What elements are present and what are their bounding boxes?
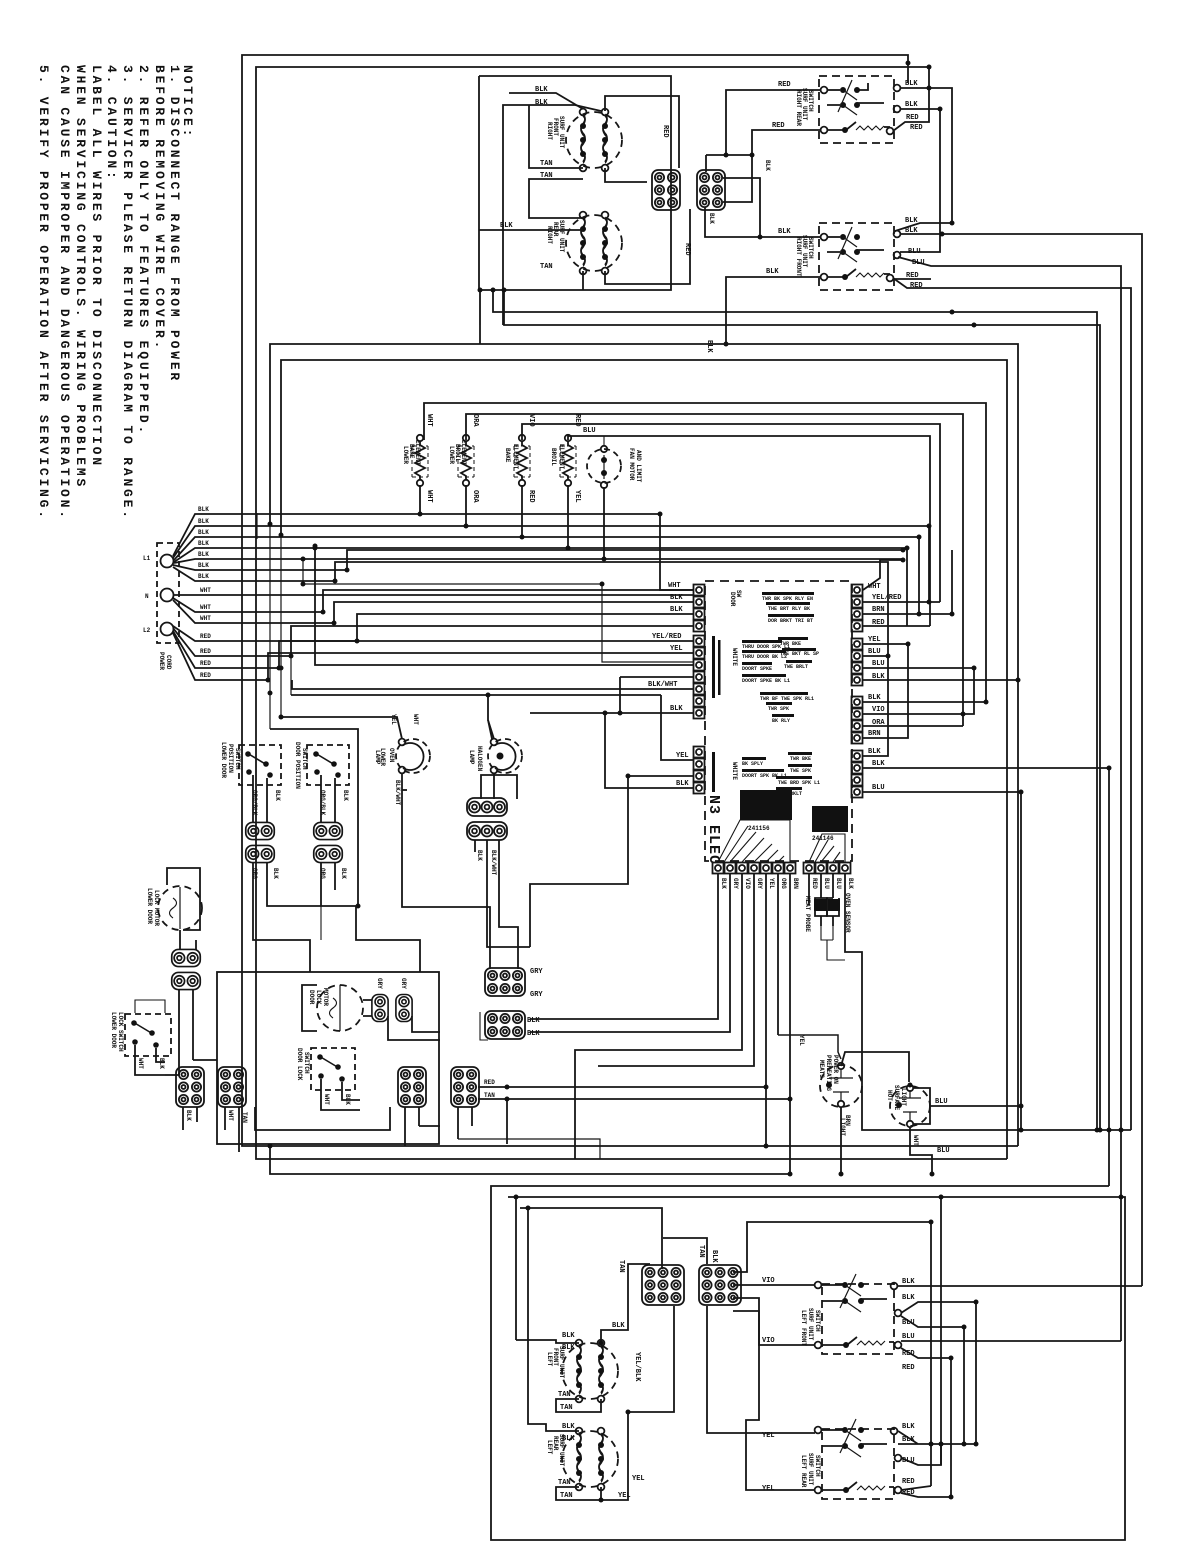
svg-text:GRY: GRY — [530, 991, 543, 999]
svg-text:ORG: ORG — [780, 878, 787, 889]
svg-text:WHT: WHT — [227, 1110, 234, 1121]
svg-text:BLK: BLK — [198, 540, 209, 547]
svg-text:LABEL ALL WIRES PRIOR TO DISCO: LABEL ALL WIRES PRIOR TO DISCONNECTION — [89, 65, 104, 468]
svg-text:RED: RED — [902, 1350, 915, 1358]
svg-text:BLK: BLK — [527, 1017, 540, 1025]
svg-text:THE BRT RLY BK: THE BRT RLY BK — [768, 606, 810, 612]
svg-text:MEATS: MEATS — [818, 1060, 825, 1078]
svg-text:WHT: WHT — [137, 1058, 144, 1069]
svg-text:BLK: BLK — [535, 86, 548, 94]
svg-text:YEL/RED: YEL/RED — [652, 633, 681, 641]
svg-text:BK SPLY: BK SPLY — [742, 761, 763, 767]
svg-text:ORA: ORA — [872, 719, 885, 727]
svg-text:BLK: BLK — [185, 1110, 192, 1121]
svg-text:LOCK: LOCK — [315, 990, 322, 1005]
svg-text:RED: RED — [902, 1478, 915, 1486]
svg-text:BLK/WHT: BLK/WHT — [648, 681, 677, 689]
svg-text:GRY: GRY — [756, 878, 763, 889]
svg-text:BLK: BLK — [905, 101, 918, 109]
svg-text:BLK: BLK — [905, 80, 918, 88]
svg-text:TAN: TAN — [558, 1391, 571, 1399]
svg-text:VIO: VIO — [762, 1277, 775, 1285]
svg-text:PREHEATING: PREHEATING — [825, 1055, 832, 1091]
svg-text:GRY: GRY — [732, 878, 739, 889]
svg-text:LOWER DOOR: LOWER DOOR — [110, 1012, 117, 1048]
svg-text:ELEMENT: ELEMENT — [558, 444, 565, 470]
svg-text:DOOR: DOOR — [308, 990, 315, 1005]
svg-text:BROIL: BROIL — [454, 444, 461, 462]
svg-text:BLK: BLK — [612, 1322, 625, 1330]
svg-text:RED: RED — [683, 243, 691, 256]
svg-text:DOR BRKT TRI BT: DOR BRKT TRI BT — [768, 618, 813, 624]
svg-text:TWE SPK: TWE SPK — [790, 768, 811, 774]
svg-text:BLK: BLK — [872, 760, 885, 768]
svg-text:RED: RED — [902, 1489, 915, 1497]
svg-text:SURF UNIT: SURF UNIT — [801, 235, 808, 268]
svg-text:MOTOR: MOTOR — [322, 988, 329, 1006]
svg-text:YEL: YEL — [390, 714, 397, 725]
svg-text:FRONT: FRONT — [552, 1348, 559, 1366]
svg-text:BLK: BLK — [872, 673, 885, 681]
svg-text:LOWER: LOWER — [448, 446, 455, 464]
svg-text:SWITCH: SWITCH — [303, 1052, 310, 1074]
svg-text:GRY: GRY — [400, 978, 407, 989]
svg-text:RED: RED — [200, 633, 211, 640]
svg-text:SWITCH: SWITCH — [301, 748, 308, 770]
svg-text:BLK: BLK — [670, 594, 683, 602]
svg-text:SW: SW — [735, 590, 742, 598]
svg-text:VIO: VIO — [527, 414, 535, 427]
svg-text:BLK: BLK — [500, 222, 513, 230]
svg-text:RED: RED — [910, 124, 923, 132]
svg-text:BLK: BLK — [905, 217, 918, 225]
svg-text:BLK: BLK — [562, 1344, 575, 1352]
svg-text:SURF UNIT: SURF UNIT — [558, 116, 565, 149]
svg-text:BLK: BLK — [902, 1294, 915, 1302]
svg-text:241156: 241156 — [748, 825, 770, 832]
svg-text:BLK: BLK — [764, 160, 771, 171]
svg-text:BLK: BLK — [868, 694, 881, 702]
svg-text:YEL/RED: YEL/RED — [872, 594, 901, 602]
svg-text:BLU: BLU — [908, 248, 921, 256]
svg-text:BLK: BLK — [342, 790, 349, 801]
svg-text:RED: RED — [200, 660, 211, 667]
svg-text:LAMP: LAMP — [468, 750, 475, 765]
svg-text:LOCK SWITCH: LOCK SWITCH — [117, 1012, 124, 1052]
svg-text:WHT: WHT — [868, 583, 881, 591]
svg-text:BLK: BLK — [905, 227, 918, 235]
svg-text:WHT: WHT — [912, 1135, 919, 1146]
svg-text:LOWER DOOR: LOWER DOOR — [146, 888, 153, 924]
svg-text:BRN: BRN — [872, 606, 885, 614]
svg-text:LOWER DOOR: LOWER DOOR — [220, 742, 227, 778]
svg-text:VIO: VIO — [762, 1337, 775, 1345]
svg-text:BLK: BLK — [708, 213, 715, 224]
svg-text:WHEN SERVICING CONTROLS. WIRIN: WHEN SERVICING CONTROLS. WIRING PROBLEMS — [73, 65, 88, 489]
svg-text:BLK: BLK — [274, 790, 281, 801]
svg-text:CAN CAUSE IMPROPER AND DANGERO: CAN CAUSE IMPROPER AND DANGEROUS OPERATI… — [57, 65, 72, 521]
svg-text:BLK: BLK — [710, 1250, 718, 1263]
svg-text:BLK/WHT: BLK/WHT — [490, 850, 497, 876]
svg-text:BLU: BLU — [902, 1333, 915, 1341]
svg-text:LOCK MOTOR: LOCK MOTOR — [153, 890, 160, 926]
svg-text:HALOGEN: HALOGEN — [476, 746, 483, 772]
svg-text:OVEN SENSOR: OVEN SENSOR — [844, 893, 851, 933]
svg-text:TWE BKT RL SP: TWE BKT RL SP — [780, 651, 819, 657]
svg-text:2. REFER ONLY TO FEATURES EQUI: 2. REFER ONLY TO FEATURES EQUIPPED. — [136, 65, 151, 436]
svg-text:ORG/BLK: ORG/BLK — [251, 790, 258, 816]
svg-text:LIGHT: LIGHT — [900, 1088, 907, 1106]
svg-text:BLK: BLK — [720, 878, 727, 889]
svg-text:TAN: TAN — [540, 172, 553, 180]
svg-text:LAMP: LAMP — [374, 750, 381, 765]
svg-text:BLU: BLU — [872, 660, 885, 668]
svg-text:WHT: WHT — [425, 414, 433, 427]
svg-text:WHT: WHT — [668, 582, 681, 590]
svg-text:RED: RED — [902, 1364, 915, 1372]
svg-text:DOOR POSITION: DOOR POSITION — [294, 742, 301, 789]
svg-text:TAN: TAN — [697, 1245, 705, 1258]
svg-text:SWITCH: SWITCH — [814, 1455, 821, 1477]
svg-text:TWR SPK: TWR SPK — [768, 706, 789, 712]
svg-text:BLK: BLK — [868, 748, 881, 756]
svg-text:RED: RED — [484, 1079, 495, 1086]
svg-text:TWR BKE: TWR BKE — [780, 641, 801, 647]
svg-text:BLK: BLK — [198, 562, 209, 569]
svg-text:BLK: BLK — [198, 551, 209, 558]
svg-text:LEFT FRONT: LEFT FRONT — [800, 1310, 807, 1346]
svg-text:BRN: BRN — [844, 1115, 851, 1126]
svg-text:BLK: BLK — [527, 1030, 540, 1038]
svg-text:TWR BF TWE SPK RL1: TWR BF TWE SPK RL1 — [760, 696, 814, 702]
svg-text:5. VERIFY PROPER OPERATION AFT: 5. VERIFY PROPER OPERATION AFTER SERVICI… — [36, 65, 51, 521]
svg-text:BEFORE REMOVING WIRE COVER.: BEFORE REMOVING WIRE COVER. — [152, 65, 167, 351]
svg-text:YEL: YEL — [768, 878, 775, 889]
svg-text:POWER ON: POWER ON — [832, 1055, 839, 1084]
svg-text:LEFT REAR: LEFT REAR — [800, 1455, 807, 1488]
svg-text:LEFT: LEFT — [546, 1440, 553, 1455]
svg-text:ORG/BLK: ORG/BLK — [319, 790, 326, 816]
svg-text:WHITE: WHITE — [731, 648, 738, 666]
svg-text:TAN: TAN — [560, 1492, 573, 1500]
svg-text:RED: RED — [910, 282, 923, 290]
svg-text:WHITE: WHITE — [731, 762, 738, 780]
svg-text:YEL: YEL — [676, 752, 689, 760]
svg-text:DOORT SPK BK L1: DOORT SPK BK L1 — [742, 773, 787, 779]
svg-text:DOORT SPKE: DOORT SPKE — [742, 666, 772, 672]
svg-text:BLK: BLK — [705, 340, 713, 353]
svg-text:BRN: BRN — [792, 878, 799, 889]
svg-text:BLK: BLK — [198, 518, 209, 525]
svg-text:BLK: BLK — [778, 228, 791, 236]
svg-text:SWITCH: SWITCH — [807, 90, 814, 112]
svg-text:BAKE: BAKE — [408, 444, 415, 459]
svg-text:SWITCH: SWITCH — [814, 1310, 821, 1332]
svg-text:SURF UNIT: SURF UNIT — [807, 1308, 814, 1341]
svg-text:RED: RED — [872, 619, 885, 627]
svg-text:AND LIMIT: AND LIMIT — [635, 450, 642, 483]
svg-text:BLU: BLU — [835, 878, 842, 889]
svg-text:WHT: WHT — [323, 1094, 330, 1105]
svg-text:BLK: BLK — [198, 573, 209, 580]
svg-text:BROIL: BROIL — [550, 448, 557, 466]
svg-text:RED: RED — [527, 490, 535, 503]
svg-text:BLK: BLK — [198, 506, 209, 513]
svg-text:WHT: WHT — [200, 604, 211, 611]
svg-text:BLK: BLK — [902, 1436, 915, 1444]
svg-text:DOOR LOCK: DOOR LOCK — [296, 1048, 303, 1081]
svg-text:BLK: BLK — [198, 529, 209, 536]
svg-text:POWER: POWER — [158, 652, 165, 670]
svg-text:SURF UNIT: SURF UNIT — [807, 1453, 814, 1486]
svg-text:TAN: TAN — [540, 263, 553, 271]
svg-text:3. SERVICER PLEASE RETURN DIAG: 3. SERVICER PLEASE RETURN DIAGRAM TO RAN… — [120, 65, 135, 521]
svg-text:GRY: GRY — [376, 978, 383, 989]
svg-text:BLU: BLU — [935, 1098, 948, 1106]
svg-text:BLK: BLK — [340, 868, 347, 879]
svg-text:RED: RED — [772, 122, 785, 130]
svg-text:YEL: YEL — [632, 1475, 645, 1483]
svg-text:L2: L2 — [143, 627, 151, 634]
svg-text:BLU: BLU — [823, 878, 830, 889]
svg-text:BLK/WHT: BLK/WHT — [394, 780, 401, 806]
svg-text:RED: RED — [200, 672, 211, 679]
svg-text:TAN: TAN — [540, 160, 553, 168]
svg-text:SWITCH: SWITCH — [234, 748, 241, 770]
svg-text:TWR BKE: TWR BKE — [790, 756, 811, 762]
svg-text:TAN: TAN — [484, 1092, 495, 1099]
svg-text:CORD: CORD — [165, 655, 172, 670]
svg-text:WHT: WHT — [412, 714, 419, 725]
svg-text:4. CAUTION:: 4. CAUTION: — [104, 65, 119, 182]
svg-text:POSITION: POSITION — [227, 744, 234, 773]
svg-text:241146: 241146 — [812, 835, 834, 842]
svg-text:BLU: BLU — [583, 427, 596, 435]
svg-text:WHT: WHT — [425, 490, 433, 503]
svg-text:TWE BRD SPK L1: TWE BRD SPK L1 — [778, 780, 820, 786]
svg-text:BLK: BLK — [562, 1423, 575, 1431]
svg-text:ELEMENT: ELEMENT — [460, 440, 467, 466]
svg-text:VIO: VIO — [872, 706, 885, 714]
svg-text:FRONT: FRONT — [552, 118, 559, 136]
svg-text:BLK: BLK — [158, 1058, 165, 1069]
svg-text:RIGHT REAR: RIGHT REAR — [795, 90, 802, 126]
svg-text:RED: RED — [811, 878, 818, 889]
svg-text:ORA: ORA — [471, 414, 479, 427]
svg-text:ELEMENT: ELEMENT — [512, 444, 519, 470]
svg-text:RIGHT: RIGHT — [546, 122, 553, 140]
svg-text:TAN: TAN — [241, 1112, 248, 1123]
svg-text:N3 ELEC: N3 ELEC — [705, 795, 722, 865]
svg-text:ORA: ORA — [471, 490, 479, 503]
svg-text:BLK: BLK — [902, 1278, 915, 1286]
svg-text:BLK: BLK — [670, 705, 683, 713]
svg-text:OVEN: OVEN — [388, 748, 395, 763]
svg-text:BLK: BLK — [676, 780, 689, 788]
svg-text:DOORT SPKE BK L1: DOORT SPKE BK L1 — [742, 678, 790, 684]
svg-text:YEL: YEL — [670, 645, 683, 653]
svg-text:TAN: TAN — [617, 1260, 625, 1273]
svg-text:BLK: BLK — [535, 99, 548, 107]
svg-text:YEL: YEL — [618, 1492, 631, 1500]
svg-text:1. DISCONNECT RANGE FROM POWER: 1. DISCONNECT RANGE FROM POWER — [167, 65, 182, 383]
svg-text:BAKE: BAKE — [504, 448, 511, 463]
svg-text:BLU: BLU — [937, 1147, 950, 1155]
svg-text:REAR: REAR — [552, 1436, 559, 1451]
svg-text:BLU: BLU — [902, 1319, 915, 1327]
svg-text:LEFT: LEFT — [546, 1352, 553, 1367]
svg-text:YEL: YEL — [798, 1035, 805, 1046]
svg-text:SURF UNIT: SURF UNIT — [558, 220, 565, 253]
svg-text:SURFACE: SURFACE — [893, 1085, 900, 1111]
svg-text:N: N — [145, 593, 149, 600]
svg-text:TWR BK SPK RLY EN: TWR BK SPK RLY EN — [762, 596, 813, 602]
svg-text:FAN MOTOR: FAN MOTOR — [628, 448, 635, 481]
svg-text:WHT: WHT — [200, 615, 211, 622]
svg-text:ELEMENT: ELEMENT — [414, 440, 421, 466]
svg-text:BLU: BLU — [912, 259, 925, 267]
svg-text:TAN: TAN — [558, 1479, 571, 1487]
svg-text:DOOR: DOOR — [729, 592, 736, 607]
svg-text:RED: RED — [778, 81, 791, 89]
svg-text:GRY: GRY — [530, 968, 543, 976]
svg-text:BLU: BLU — [868, 648, 881, 656]
svg-text:ORG: ORG — [251, 868, 258, 879]
svg-text:YEL: YEL — [868, 636, 881, 644]
svg-text:BLU: BLU — [872, 784, 885, 792]
svg-text:BLK: BLK — [272, 868, 279, 879]
svg-text:RED: RED — [906, 272, 919, 280]
svg-text:TAN: TAN — [560, 1404, 573, 1412]
svg-text:BLK: BLK — [766, 268, 779, 276]
svg-text:HOT: HOT — [886, 1090, 893, 1101]
svg-text:BLU: BLU — [902, 1457, 915, 1465]
svg-text:BLK: BLK — [476, 850, 483, 861]
svg-text:BLK: BLK — [670, 606, 683, 614]
svg-text:L1: L1 — [143, 555, 151, 562]
svg-text:YEL: YEL — [762, 1485, 775, 1493]
svg-text:WHT: WHT — [200, 587, 211, 594]
svg-text:RIGHT: RIGHT — [546, 226, 553, 244]
svg-text:TWE BRLT: TWE BRLT — [784, 664, 808, 670]
svg-text:VIO: VIO — [744, 878, 751, 889]
svg-text:RIGHT FRONT: RIGHT FRONT — [795, 237, 802, 277]
svg-text:ORG: ORG — [319, 868, 326, 879]
svg-text:BLK: BLK — [562, 1435, 575, 1443]
svg-text:RED: RED — [661, 125, 669, 138]
svg-text:BRN: BRN — [868, 730, 881, 738]
svg-text:MEAT PROBE: MEAT PROBE — [804, 896, 811, 932]
svg-text:LOWER: LOWER — [402, 446, 409, 464]
svg-text:YEL/BLK: YEL/BLK — [633, 1352, 641, 1382]
svg-text:BK RLY: BK RLY — [772, 718, 790, 724]
svg-text:BLK: BLK — [562, 1332, 575, 1340]
svg-text:SURF UNIT: SURF UNIT — [801, 88, 808, 121]
svg-text:YEL: YEL — [573, 490, 581, 503]
svg-text:RED: RED — [573, 414, 581, 427]
svg-text:BLK: BLK — [847, 878, 854, 889]
svg-text:SWITCH: SWITCH — [807, 237, 814, 259]
svg-text:RED: RED — [906, 114, 919, 122]
svg-text:BLK: BLK — [902, 1423, 915, 1431]
svg-text:RED: RED — [200, 648, 211, 655]
